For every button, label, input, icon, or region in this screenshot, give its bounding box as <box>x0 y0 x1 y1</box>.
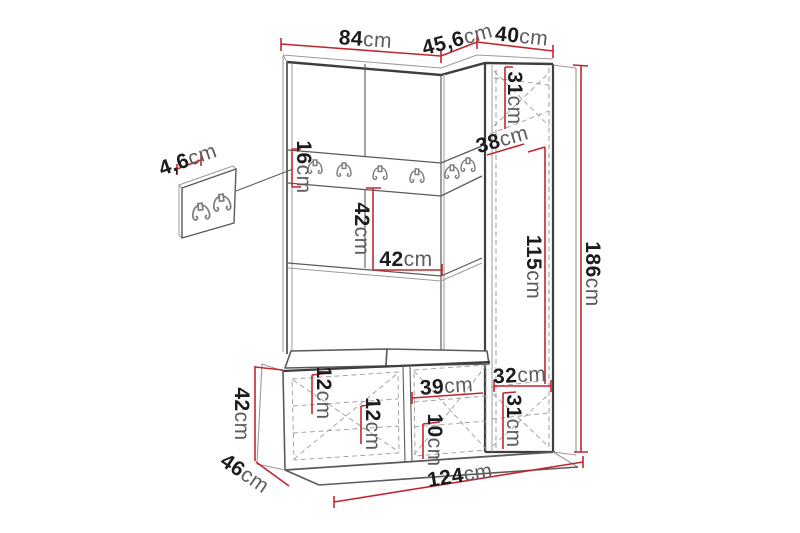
dimension-label-45-6cm: 45,6cm <box>420 19 495 60</box>
diagram-canvas: 84cm 45,6cm 40cm 4,6cm 16cm 38cm 31cm 42… <box>0 0 800 533</box>
dimension-label-32cm: 32cm <box>492 363 546 389</box>
dimension-label-186cm: 186cm <box>581 241 604 307</box>
dimension-label-84cm: 84cm <box>338 26 393 53</box>
furniture-dimension-drawing: 84cm 45,6cm 40cm 4,6cm 16cm 38cm 31cm 42… <box>0 0 800 533</box>
coat-hook-icon <box>461 158 475 171</box>
dimension-label-42cm-horizontal: 42cm <box>379 248 432 271</box>
coat-hook-icon <box>410 169 424 182</box>
dimension-label-31cm-bottom: 31cm <box>502 394 525 447</box>
dimension-label-42cm-bench: 42cm <box>230 387 253 440</box>
dimension-label-31cm-top: 31cm <box>503 71 526 124</box>
hook-rail <box>288 146 482 196</box>
dimension-label-12cm-top: 12cm <box>312 366 335 419</box>
dimension-label-40cm: 40cm <box>494 22 549 50</box>
panel-pointer-line <box>236 169 293 191</box>
dimension-label-38cm: 38cm <box>473 121 531 158</box>
dimension-label-39cm: 39cm <box>419 373 474 400</box>
wall-hook-panel <box>179 166 293 238</box>
coat-hook-icon <box>373 166 387 179</box>
dimension-label-12cm-inner: 12cm <box>361 397 384 450</box>
dimension-label-42cm-vertical: 42cm <box>350 202 373 255</box>
dimension-label-115cm: 115cm <box>522 235 545 299</box>
coat-hook-icon <box>337 163 351 176</box>
bench-cushion <box>285 349 387 368</box>
dimension-label-46cm: 46cm <box>216 449 273 498</box>
coat-hook-icon <box>445 165 459 178</box>
dimension-labels: 84cm 45,6cm 40cm 4,6cm 16cm 38cm 31cm 42… <box>156 19 604 498</box>
dimension-label-10cm: 10cm <box>423 413 446 466</box>
dimension-label-16cm: 16cm <box>292 140 315 193</box>
